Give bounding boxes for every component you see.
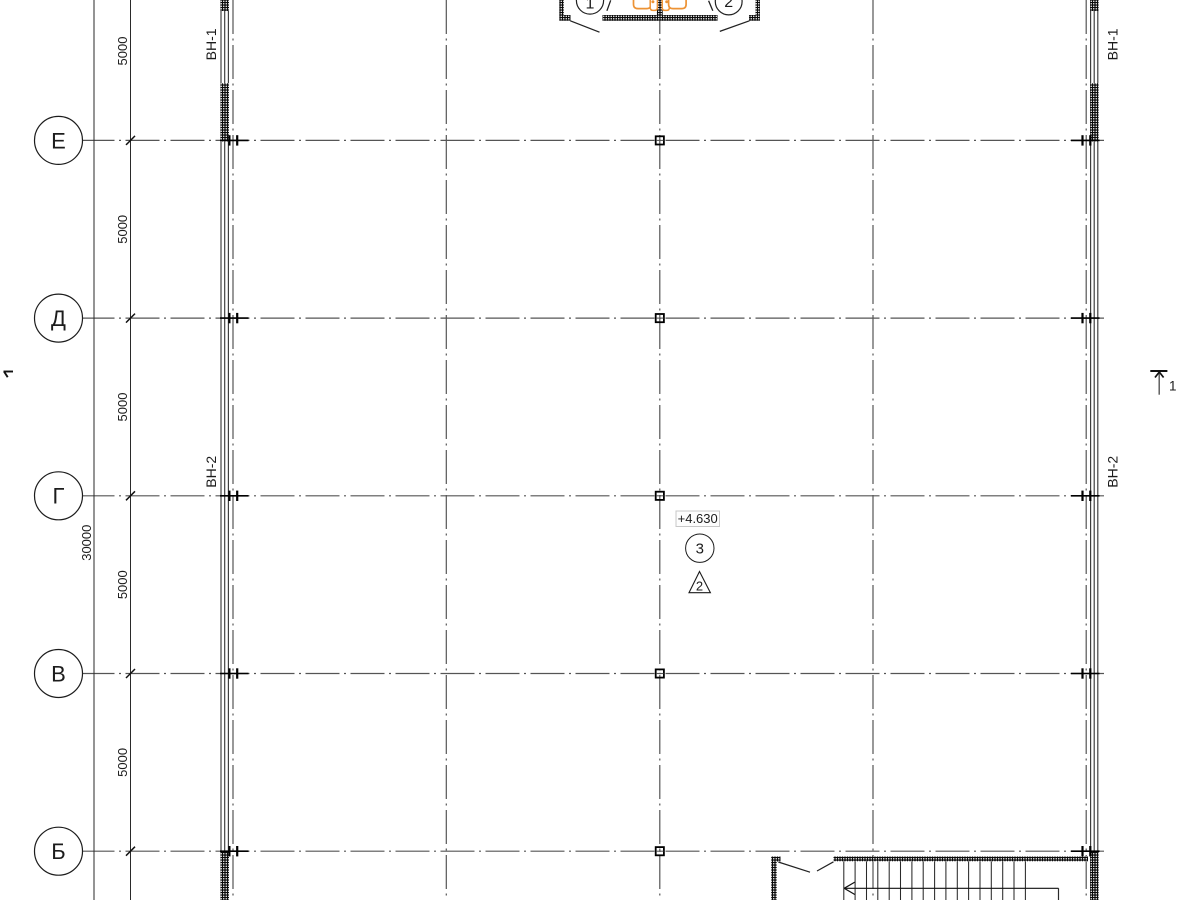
- svg-text:ВН-2: ВН-2: [203, 456, 219, 488]
- svg-text:В: В: [51, 661, 66, 686]
- svg-text:3: 3: [696, 541, 704, 558]
- svg-text:5000: 5000: [115, 393, 130, 422]
- svg-text:1: 1: [1169, 379, 1177, 394]
- svg-text:30000: 30000: [79, 525, 94, 561]
- svg-text:Д: Д: [51, 306, 66, 331]
- svg-text:+4.630: +4.630: [678, 511, 718, 526]
- svg-text:2: 2: [696, 579, 703, 594]
- svg-text:5000: 5000: [115, 570, 130, 599]
- svg-text:5000: 5000: [115, 37, 130, 66]
- svg-text:1: 1: [586, 0, 595, 13]
- svg-text:Г: Г: [53, 484, 65, 509]
- svg-text:Б: Б: [51, 839, 65, 864]
- svg-text:2: 2: [724, 0, 733, 11]
- svg-text:ВН-1: ВН-1: [1105, 28, 1121, 60]
- svg-text:Е: Е: [51, 128, 66, 153]
- svg-text:ВН-2: ВН-2: [1105, 456, 1121, 488]
- svg-text:ВН-1: ВН-1: [203, 28, 219, 60]
- svg-text:5000: 5000: [115, 748, 130, 777]
- svg-text:5000: 5000: [115, 215, 130, 244]
